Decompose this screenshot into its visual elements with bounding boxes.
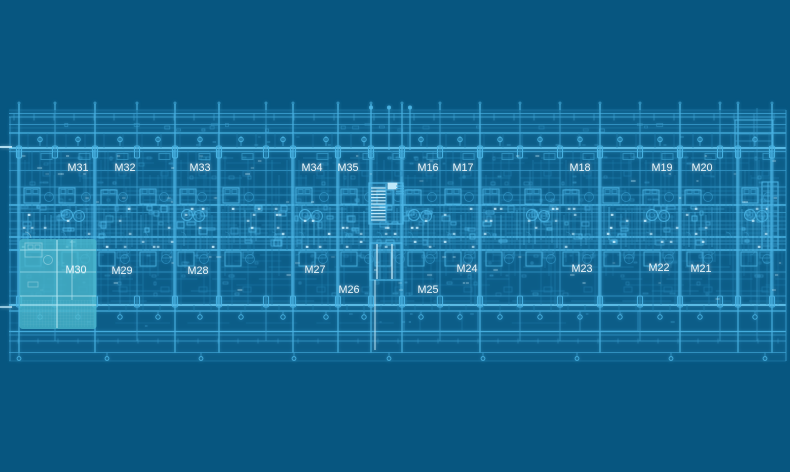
svg-text:M23: M23 (571, 263, 592, 275)
svg-text:M32: M32 (114, 162, 135, 174)
svg-text:M20: M20 (691, 162, 712, 174)
svg-text:M21: M21 (690, 263, 711, 275)
svg-text:M26: M26 (338, 284, 359, 296)
svg-text:M34: M34 (301, 162, 322, 174)
svg-text:M35: M35 (337, 162, 358, 174)
svg-text:M17: M17 (452, 162, 473, 174)
svg-text:M24: M24 (456, 263, 477, 275)
svg-text:M27: M27 (304, 264, 325, 276)
svg-text:M18: M18 (569, 162, 590, 174)
svg-text:M29: M29 (111, 265, 132, 277)
svg-text:M28: M28 (187, 265, 208, 277)
svg-text:M30: M30 (65, 264, 86, 276)
svg-text:M33: M33 (189, 162, 210, 174)
svg-text:M16: M16 (417, 162, 438, 174)
svg-text:M25: M25 (417, 284, 438, 296)
svg-text:M19: M19 (651, 162, 672, 174)
svg-text:M31: M31 (67, 162, 88, 174)
svg-text:M22: M22 (648, 262, 669, 274)
